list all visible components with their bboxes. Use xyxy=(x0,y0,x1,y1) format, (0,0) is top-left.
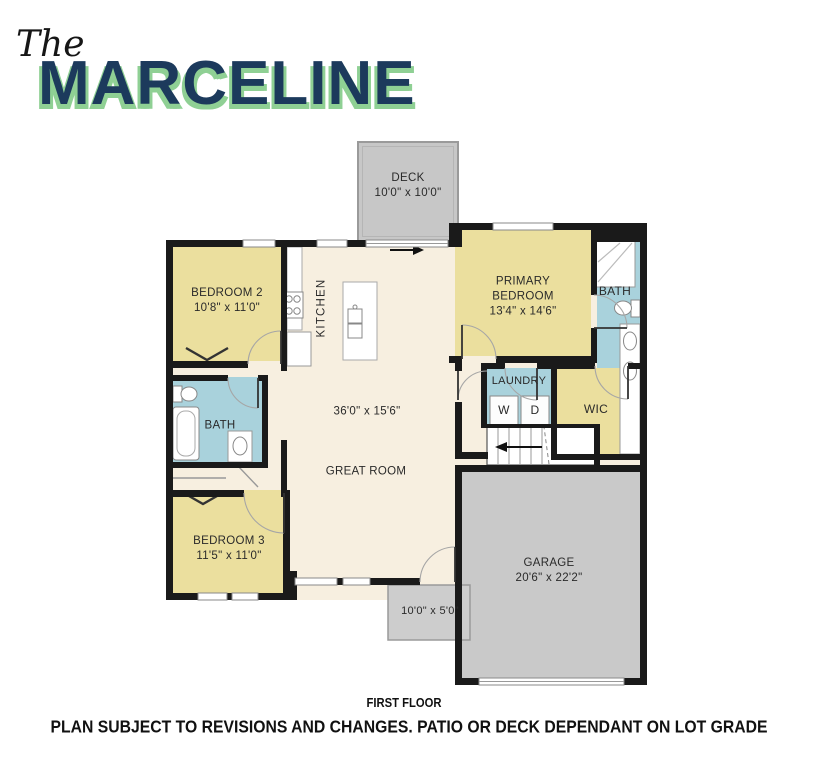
disclaimer-text: PLAN SUBJECT TO REVISIONS AND CHANGES. P… xyxy=(51,717,768,738)
deck-dims: 10'0" x 10'0" xyxy=(375,186,442,201)
laundry-label: LAUNDRY xyxy=(492,374,546,388)
floor-plan-page: The MARCELINE xyxy=(0,0,820,768)
pantry xyxy=(287,332,311,366)
great-room-dims: 36'0" x 15'6" xyxy=(334,405,401,420)
bedroom2-label: BEDROOM 2 10'8" x 11'0" xyxy=(191,286,263,316)
floor-plan-drawing xyxy=(0,0,820,768)
bedroom3-label: BEDROOM 3 11'5" x 11'0" xyxy=(193,534,265,564)
primary-bedroom-name: PRIMARY BEDROOM xyxy=(471,275,575,305)
primary-bedroom-label: PRIMARY BEDROOM 13'4" x 14'6" xyxy=(471,275,575,320)
wic-label: WIC xyxy=(584,402,608,418)
washer-label: W xyxy=(498,403,510,419)
hall-bath-label: BATH xyxy=(204,419,235,434)
toilet-icon xyxy=(631,300,640,317)
first-floor-label: FIRST FLOOR xyxy=(367,696,442,710)
bedroom2-name: BEDROOM 2 xyxy=(191,286,263,301)
deck-label: DECK 10'0" x 10'0" xyxy=(375,171,442,201)
bedroom3-dims: 11'5" x 11'0" xyxy=(193,549,265,564)
primary-bath-label: BATH xyxy=(599,284,631,300)
bedroom2-dims: 10'8" x 11'0" xyxy=(191,301,263,316)
garage-label: GARAGE 20'6" x 22'2" xyxy=(516,556,583,586)
kitchen-label: KITCHEN xyxy=(315,279,330,338)
garage-name: GARAGE xyxy=(516,556,583,571)
patio-dims: 10'0" x 5'0" xyxy=(401,604,459,618)
dryer-label: D xyxy=(531,403,540,419)
island-sink-icon xyxy=(348,309,362,323)
bedroom3-name: BEDROOM 3 xyxy=(193,534,265,549)
deck-name: DECK xyxy=(375,171,442,186)
primary-bedroom-dims: 13'4" x 14'6" xyxy=(471,304,575,319)
great-room-label: GREAT ROOM xyxy=(326,465,407,480)
garage-dims: 20'6" x 22'2" xyxy=(516,571,583,586)
